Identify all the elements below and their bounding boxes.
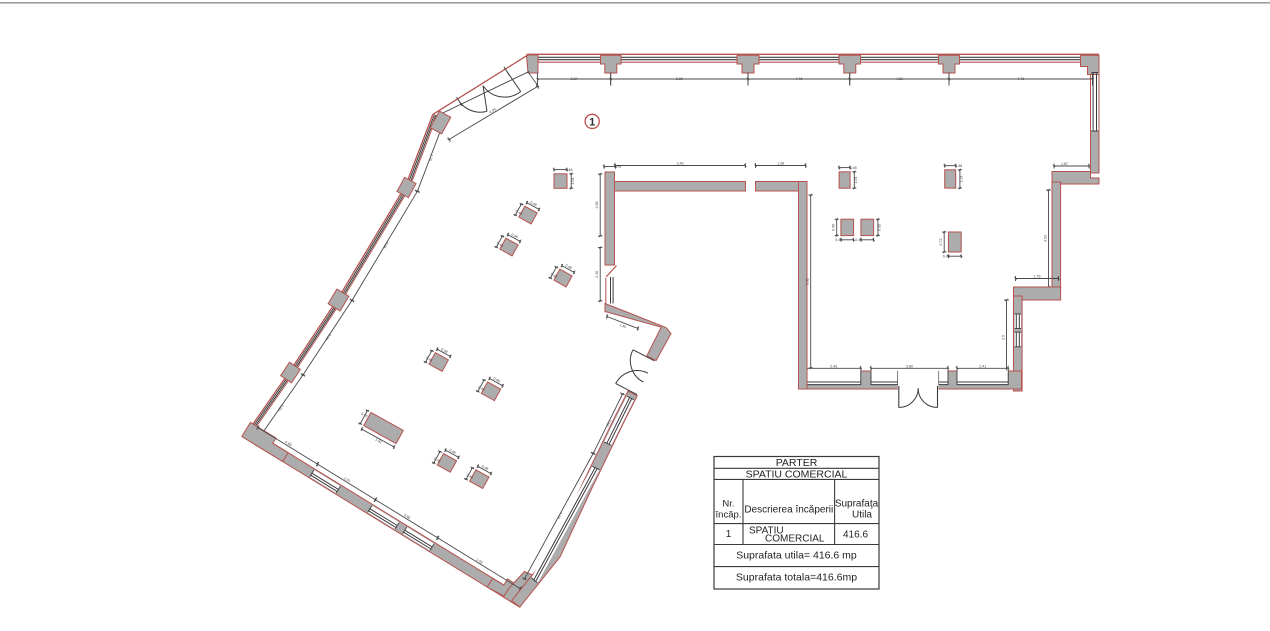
svg-text:Suprafata utila= 416.6 mp: Suprafata utila= 416.6 mp bbox=[736, 550, 857, 562]
svg-text:5.52: 5.52 bbox=[806, 278, 810, 285]
svg-text:1.76: 1.76 bbox=[1034, 275, 1041, 279]
svg-text:0.48: 0.48 bbox=[850, 166, 857, 170]
svg-text:1.70: 1.70 bbox=[428, 154, 434, 162]
svg-text:1.04: 1.04 bbox=[571, 178, 575, 185]
svg-text:0.45: 0.45 bbox=[360, 412, 368, 419]
svg-text:0.95: 0.95 bbox=[832, 224, 836, 231]
svg-text:0.48: 0.48 bbox=[943, 254, 950, 258]
svg-text:3.40: 3.40 bbox=[677, 162, 684, 166]
svg-text:1.24: 1.24 bbox=[960, 176, 964, 183]
svg-text:Descrierea încăperii: Descrierea încăperii bbox=[744, 505, 833, 516]
svg-text:Suprafata totala=416.6mp: Suprafata totala=416.6mp bbox=[736, 572, 857, 584]
svg-text:0.48: 0.48 bbox=[955, 164, 962, 168]
svg-text:0.72: 0.72 bbox=[939, 239, 943, 246]
svg-text:2.80: 2.80 bbox=[676, 77, 683, 81]
svg-text:Utila: Utila bbox=[852, 510, 872, 521]
svg-text:PARTER: PARTER bbox=[776, 457, 818, 469]
svg-text:2.84: 2.84 bbox=[571, 77, 578, 81]
svg-text:416.6: 416.6 bbox=[843, 529, 868, 540]
svg-text:SPATIU COMERCIAL: SPATIU COMERCIAL bbox=[746, 469, 848, 481]
svg-text:2.41: 2.41 bbox=[979, 364, 986, 368]
svg-text:3.80: 3.80 bbox=[906, 364, 913, 368]
svg-text:2.30: 2.30 bbox=[595, 271, 599, 278]
svg-text:0.95: 0.95 bbox=[878, 224, 882, 231]
svg-text:0.48: 0.48 bbox=[855, 238, 862, 242]
svg-text:0.48: 0.48 bbox=[835, 238, 842, 242]
svg-text:4.21: 4.21 bbox=[896, 77, 903, 81]
svg-text:Nr.: Nr. bbox=[722, 499, 734, 510]
svg-text:4.53: 4.53 bbox=[1043, 235, 1047, 242]
svg-text:2.43: 2.43 bbox=[830, 364, 837, 368]
svg-text:2.58: 2.58 bbox=[595, 202, 599, 209]
svg-text:1.04: 1.04 bbox=[854, 177, 858, 184]
svg-text:1.52: 1.52 bbox=[374, 438, 382, 445]
svg-text:Suprafaţa: Suprafaţa bbox=[835, 499, 879, 510]
svg-text:3.5: 3.5 bbox=[1001, 335, 1005, 340]
svg-text:1: 1 bbox=[726, 529, 732, 540]
svg-text:0.48: 0.48 bbox=[566, 168, 573, 172]
svg-text:1.28: 1.28 bbox=[777, 162, 784, 166]
svg-text:încăp.: încăp. bbox=[715, 510, 742, 521]
svg-text:COMERCIAL: COMERCIAL bbox=[765, 533, 825, 544]
svg-text:1.87: 1.87 bbox=[1061, 162, 1068, 166]
svg-text:4.76: 4.76 bbox=[795, 77, 802, 81]
svg-text:1: 1 bbox=[589, 117, 595, 129]
svg-text:4.76: 4.76 bbox=[1017, 77, 1024, 81]
